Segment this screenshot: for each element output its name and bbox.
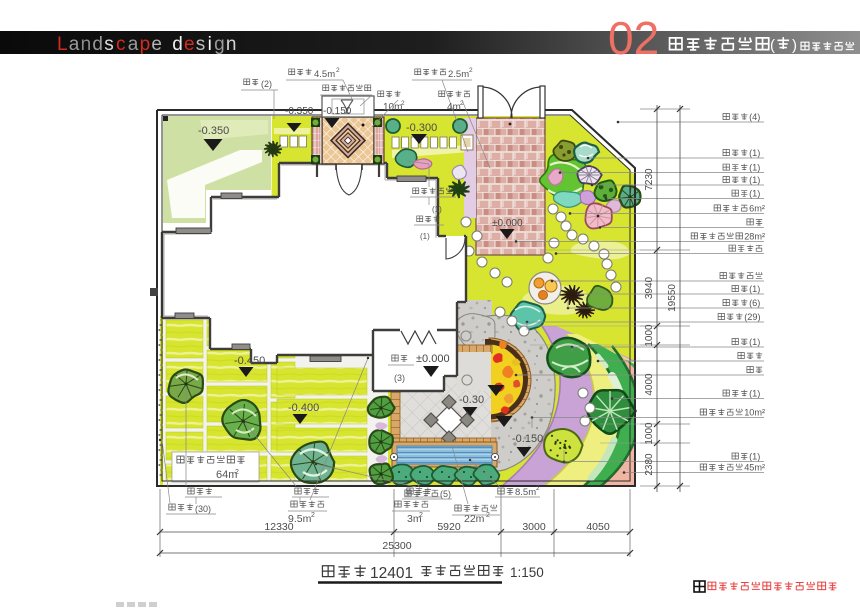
svg-text:25300: 25300	[382, 540, 411, 552]
svg-text:(4): (4)	[749, 112, 760, 122]
svg-text:-0.350: -0.350	[285, 106, 314, 117]
svg-text:g: g	[214, 34, 225, 55]
svg-text:e: e	[184, 34, 195, 55]
svg-text:2: 2	[486, 512, 490, 519]
svg-text:±0.000: ±0.000	[416, 353, 450, 365]
svg-text:s: s	[104, 34, 114, 55]
svg-text:d: d	[172, 34, 183, 55]
svg-text:3000: 3000	[522, 521, 546, 533]
svg-text:2: 2	[311, 512, 315, 519]
svg-text:(1): (1)	[749, 284, 760, 294]
svg-text:-0.400: -0.400	[288, 402, 319, 414]
svg-text:n: n	[81, 34, 92, 55]
svg-text:(30): (30)	[195, 504, 211, 514]
svg-text:2: 2	[336, 67, 340, 74]
svg-text:-0.300: -0.300	[406, 122, 437, 134]
svg-text:4000: 4000	[644, 373, 655, 396]
svg-text:(29): (29)	[744, 312, 760, 322]
svg-text:1:150: 1:150	[510, 565, 544, 580]
svg-text:(2): (2)	[261, 79, 272, 89]
svg-text:-0.350: -0.350	[198, 125, 229, 137]
svg-text:7230: 7230	[644, 168, 655, 191]
svg-text:02: 02	[608, 12, 659, 64]
svg-text:): )	[792, 37, 797, 54]
svg-text:-0.150: -0.150	[512, 433, 543, 445]
svg-text:4.5m: 4.5m	[314, 69, 335, 80]
svg-text:a: a	[128, 34, 139, 55]
svg-text:c: c	[116, 34, 126, 55]
svg-text:3940: 3940	[644, 276, 655, 299]
svg-text:s: s	[196, 34, 206, 55]
svg-text:2380: 2380	[644, 453, 655, 476]
svg-text:2: 2	[401, 100, 405, 107]
svg-text:(5): (5)	[440, 489, 451, 499]
svg-text:(1): (1)	[749, 163, 760, 173]
svg-text:2.5m: 2.5m	[448, 69, 469, 80]
svg-text:12401: 12401	[370, 565, 413, 582]
svg-text:5920: 5920	[437, 521, 461, 533]
svg-text:(1): (1)	[420, 232, 430, 241]
svg-text:(1): (1)	[432, 205, 442, 214]
svg-text:1000: 1000	[644, 422, 655, 445]
svg-text:p: p	[140, 34, 151, 55]
svg-text:2: 2	[235, 469, 239, 476]
svg-text:e: e	[151, 34, 162, 55]
svg-text:1000: 1000	[644, 324, 655, 347]
svg-text:a: a	[69, 34, 80, 55]
svg-text:d: d	[92, 34, 103, 55]
svg-text:-0.450: -0.450	[234, 355, 265, 367]
svg-text:10m: 10m	[383, 102, 402, 113]
svg-text:(1): (1)	[749, 337, 760, 347]
svg-text:9.5m: 9.5m	[288, 513, 312, 525]
svg-text:28m²: 28m²	[744, 232, 765, 242]
svg-text:L: L	[57, 34, 68, 55]
svg-text:8.5m: 8.5m	[515, 487, 536, 498]
svg-text:-0.150: -0.150	[323, 106, 352, 117]
svg-text:45m²: 45m²	[744, 463, 765, 473]
svg-text:(1): (1)	[749, 452, 760, 462]
svg-text:19550: 19550	[667, 284, 678, 312]
svg-text:(: (	[770, 37, 775, 54]
svg-text:(6): (6)	[749, 298, 760, 308]
svg-text:(1): (1)	[749, 175, 760, 185]
svg-text:i: i	[208, 34, 212, 55]
svg-text:(3): (3)	[394, 373, 405, 383]
svg-text:10m²: 10m²	[744, 408, 765, 418]
svg-text:±0.000: ±0.000	[492, 218, 523, 229]
svg-text:-0.30: -0.30	[459, 394, 484, 406]
svg-text:6m²: 6m²	[749, 204, 765, 214]
svg-text:4050: 4050	[586, 521, 610, 533]
svg-text:n: n	[226, 34, 237, 55]
svg-text:(1): (1)	[749, 189, 760, 199]
svg-text:2: 2	[469, 67, 473, 74]
svg-text:(1): (1)	[749, 389, 760, 399]
svg-text:2: 2	[536, 485, 540, 492]
svg-text:2: 2	[419, 512, 423, 519]
svg-text:4m: 4m	[447, 102, 461, 113]
svg-text:(1): (1)	[749, 148, 760, 158]
